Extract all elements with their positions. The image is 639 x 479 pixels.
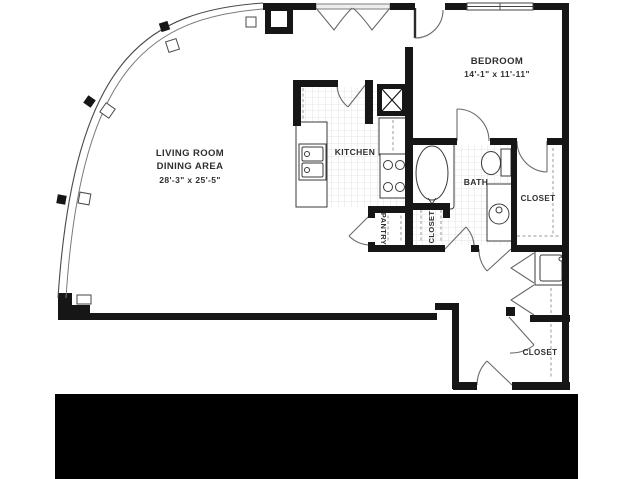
wall-hall-top [511, 245, 569, 252]
side-window [77, 295, 91, 304]
bath-label: BATH [464, 177, 489, 187]
floor-plan-image: LIVING ROOM DINING AREA 28'-3" x 25'-5" … [0, 0, 639, 479]
living-room-label: LIVING ROOM [156, 148, 224, 159]
wall-bath-bottom-stub [471, 245, 479, 252]
wall-kitchen-bedroom-divider [405, 47, 413, 252]
wall-kitchen-stub [365, 80, 373, 124]
stove [380, 154, 408, 198]
wall-linen-right-stub [443, 203, 450, 218]
wall-stub [506, 307, 515, 316]
burner [384, 183, 393, 192]
pantry-door-leaf [349, 214, 371, 236]
vanity-faucet [496, 207, 502, 213]
entry-door-leaf [487, 361, 512, 385]
wall-bottom-left [60, 313, 437, 320]
pantry-label: PANTRY [379, 213, 388, 245]
wall-bath-top [412, 138, 457, 145]
wall-hall-left [452, 303, 459, 389]
wall-corner-block [58, 293, 72, 320]
dining-area-label: DINING AREA [157, 161, 224, 172]
sink-drain [305, 168, 310, 173]
french-door-right-swing [353, 8, 390, 30]
bath-hall-door-swing [479, 249, 487, 271]
sink-drain [305, 152, 310, 157]
entry-door-swing [477, 361, 487, 385]
floor-plan-drawing: LIVING ROOM DINING AREA 28'-3" x 25'-5" … [0, 0, 639, 479]
wall-bottom [512, 382, 570, 390]
wall-kitchen-left [293, 80, 301, 126]
column-marker [78, 192, 91, 205]
wall-linen-top [412, 203, 445, 210]
bath-bedroom-door-swing [457, 109, 489, 141]
wall-pantry-bottom [368, 245, 405, 252]
bath-hall-door-leaf [487, 249, 511, 271]
bathtub-basin [416, 146, 448, 200]
column-hollow [271, 11, 287, 27]
wall-bath-closet-divider [511, 138, 517, 252]
burner [384, 161, 393, 170]
bedroom-dimensions: 14'-1" x 11'-11" [464, 69, 530, 79]
redacted-black-bar [55, 394, 578, 479]
wall-closet-top [547, 138, 562, 145]
kitchen-label: KITCHEN [335, 147, 376, 157]
wall-laundry-bottom [530, 315, 570, 322]
column-marker [100, 103, 115, 118]
pantry-door-swing [349, 236, 371, 245]
wall-jog [70, 305, 90, 320]
wall-bath-bottom [405, 245, 445, 252]
burner [396, 183, 405, 192]
entry-closet-label: CLOSET [523, 348, 558, 357]
mullion-block [56, 194, 66, 204]
mullion-block [83, 95, 96, 108]
wall-top [445, 3, 467, 10]
wall-top [390, 3, 415, 10]
bedroom-closet-label: CLOSET [521, 194, 556, 203]
toilet-bowl [482, 152, 501, 175]
column-marker [246, 17, 256, 27]
living-room-dimensions: 28'-3" x 25'-5" [159, 175, 221, 185]
bedroom-label: BEDROOM [471, 56, 523, 67]
column-marker [166, 39, 180, 53]
wall-pantry-left [368, 206, 375, 218]
burner [396, 161, 405, 170]
laundry-bifold-doors [511, 253, 534, 315]
wall-right [562, 3, 569, 383]
bedroom-closet-door-swing [517, 141, 547, 172]
linen-closet-label: CLOSET [427, 211, 436, 244]
toilet-tank [501, 149, 511, 176]
french-door-left-swing [316, 8, 352, 30]
bedroom-door-swing [415, 10, 443, 38]
